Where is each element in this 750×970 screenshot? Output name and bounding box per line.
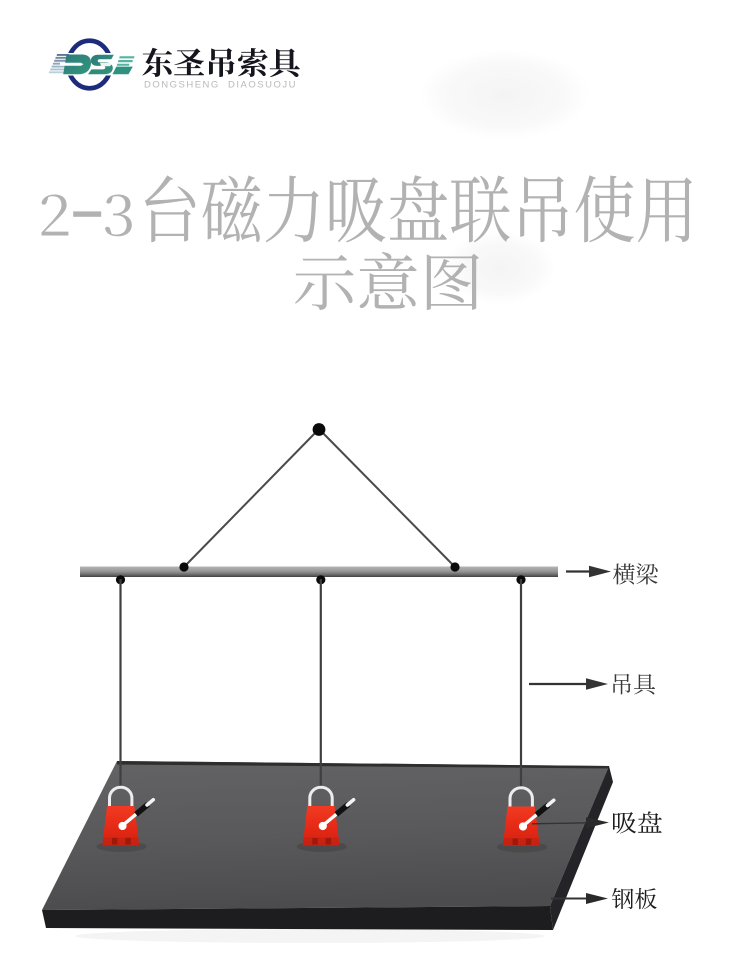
svg-text:DONGSHENG DIAOSUOJU: DONGSHENG DIAOSUOJU (144, 80, 297, 91)
